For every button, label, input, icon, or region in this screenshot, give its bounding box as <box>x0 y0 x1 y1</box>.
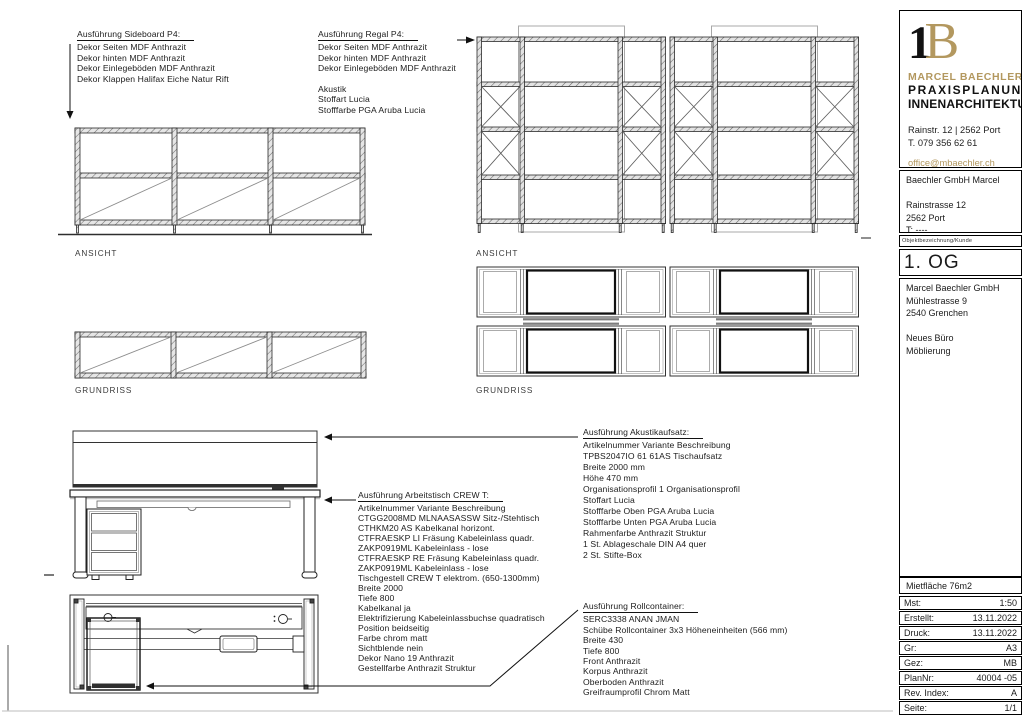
spec-line: Tiefe 800 <box>358 593 545 603</box>
meta-row: Gr: A3 <box>899 641 1022 655</box>
brand-address: Rainstr. 12 | 2562 Port T. 079 356 62 61 <box>908 124 1013 149</box>
spec-line: Farbe chrom matt <box>358 633 545 643</box>
spec-line: Breite 430 <box>583 635 787 645</box>
client-line: 2562 Port <box>906 212 1015 225</box>
spec-line: Greifraumprofil Chrom Matt <box>583 687 787 697</box>
sideboard-plan-diagonals <box>80 337 361 373</box>
spec-line: Akustik <box>318 84 456 94</box>
company-logo: 1B <box>908 18 1013 68</box>
spec-line: Stofffarbe Unten PGA Aruba Lucia <box>583 517 740 528</box>
desk-rollcontainer-front <box>87 509 141 580</box>
regal-spec-block: Ausführung Regal P4: Dekor Seiten MDF An… <box>318 29 456 115</box>
spec-line: ZAKP0919ML Kabeleinlass - lose <box>358 563 545 573</box>
rollcontainer-spec-lines: SERC3338 ANAN JMANSchübe Rollcontainer 3… <box>583 614 787 697</box>
meta-row: Seite: 1/1 <box>899 701 1022 715</box>
meta-value: 13.11.2022 <box>973 628 1017 638</box>
spec-line: Stoffart Lucia <box>583 495 740 506</box>
project-line: Mühlestrasse 9 <box>906 295 1015 308</box>
project-line: 2540 Grenchen <box>906 307 1015 320</box>
arbeitstisch-spec-lines: Artikelnummer Variante BeschreibungCTGG2… <box>358 503 545 673</box>
meta-label: Druck: <box>904 628 930 638</box>
brand-street: Rainstr. 12 | 2562 Port <box>908 124 1013 137</box>
logo-mark-b: B <box>925 13 960 70</box>
spec-line: Dekor Seiten MDF Anthrazit <box>77 42 229 52</box>
meta-value: A3 <box>1006 643 1017 653</box>
desk-plan-drawing <box>40 590 352 702</box>
meta-row: Rev. Index: A <box>899 686 1022 700</box>
spec-line: CTHKM20 AS Kabelkanal horizont. <box>358 523 545 533</box>
regal-spec-lines: Dekor Seiten MDF AnthrazitDekor hinten M… <box>318 42 456 115</box>
akustikaufsatz-spec-block: Ausführung Akustikaufsatz: Artikelnummer… <box>583 427 740 561</box>
spec-line: Dekor Seiten MDF Anthrazit <box>318 42 456 52</box>
meta-label: Gr: <box>904 643 917 653</box>
spec-line: Artikelnummer Variante Beschreibung <box>583 440 740 451</box>
logo-box: 1B MARCEL BAECHLER PRAXISPLANUNG INNENAR… <box>899 10 1022 168</box>
meta-value: 1:50 <box>999 598 1017 608</box>
spec-line: Gestellfarbe Anthrazit Struktur <box>358 663 545 673</box>
client-line: T: ---- <box>906 224 1015 233</box>
regal-plan-mid-panels <box>523 318 812 325</box>
brand-contact: office@mbaechler.ch marcelbaechler.ch <box>908 157 1013 168</box>
meta-value: 1/1 <box>1004 703 1017 713</box>
project-line: Möblierung <box>906 345 1015 358</box>
spec-line: SERC3338 ANAN JMAN <box>583 614 787 624</box>
spec-line: Breite 2000 <box>358 583 545 593</box>
spec-line: ZAKP0919ML Kabeleinlass - lose <box>358 543 545 553</box>
spec-line: Organisationsprofil 1 Organisationsprofi… <box>583 484 740 495</box>
sideboard-spec-block: Ausführung Sideboard P4: Dekor Seiten MD… <box>77 29 229 84</box>
spec-line: Dekor Einlegeböden MDF Anthrazit <box>77 63 229 73</box>
regal-plan-inner <box>480 270 857 374</box>
meta-label: Rev. Index: <box>904 688 949 698</box>
title-block: 1B MARCEL BAECHLER PRAXISPLANUNG INNENAR… <box>899 10 1022 715</box>
spec-line: Elektrifizierung Kabeleinlassbuchse quad… <box>358 613 545 623</box>
meta-label: Gez: <box>904 658 923 668</box>
regal-grundriss-label: GRUNDRISS <box>476 386 533 395</box>
sideboard-frame <box>75 128 365 233</box>
rollcontainer-spec-title: Ausführung Rollcontainer: <box>583 601 698 613</box>
spec-line: CTFRAESKP RE Fräsung Kabeleinlass quadr. <box>358 553 545 563</box>
spec-line: 2 St. Stifte-Box <box>583 550 740 561</box>
regal-plan-acoustic-boxes <box>527 271 808 373</box>
akustikaufsatz-spec-lines: Artikelnummer Variante BeschreibungTPBS2… <box>583 440 740 561</box>
sideboard-grundriss-label: GRUNDRISS <box>75 386 132 395</box>
regal-elevation-drawing <box>470 22 870 237</box>
spec-line: Tischgestell CREW T elektrom. (650-1300m… <box>358 573 545 583</box>
brand-name: MARCEL BAECHLER <box>908 71 1013 83</box>
brand-email: office@mbaechler.ch <box>908 157 1013 168</box>
sideboard-flap-diagonals <box>80 178 360 220</box>
spec-line: Schübe Rollcontainer 3x3 Höheneinheiten … <box>583 625 787 635</box>
regal-plan-drawing <box>470 258 870 383</box>
spec-line: Stofffarbe Oben PGA Aruba Lucia <box>583 506 740 517</box>
regal-spec-title: Ausführung Regal P4: <box>318 29 418 41</box>
client-lines: Baechler GmbH MarcelRainstrasse 122562 P… <box>906 174 1015 233</box>
spec-line: Korpus Anthrazit <box>583 666 787 676</box>
meta-value: 13.11.2022 <box>973 613 1017 623</box>
arbeitstisch-spec-block: Ausführung Arbeitstisch CREW T: Artikeln… <box>358 490 545 673</box>
spec-line: Rahmenfarbe Anthrazit Struktur <box>583 528 740 539</box>
meta-value: MB <box>1004 658 1018 668</box>
desk-acoustic-topper <box>73 431 317 490</box>
spec-line <box>318 74 456 84</box>
project-line: Neues Büro <box>906 332 1015 345</box>
brand-phone: T. 079 356 62 61 <box>908 137 1013 150</box>
spec-line: Dekor Klappen Halifax Eiche Natur Rift <box>77 74 229 84</box>
regal-frame <box>477 37 859 233</box>
client-line: Baechler GmbH Marcel <box>906 174 1015 187</box>
project-line <box>906 320 1015 333</box>
desk-elevation-drawing <box>40 425 352 585</box>
meta-row: Druck: 13.11.2022 <box>899 626 1022 640</box>
object-label-strip: Objektbezeichnung/Kunde <box>899 235 1022 247</box>
spec-line: Artikelnummer Variante Beschreibung <box>358 503 545 513</box>
desk-plan-top-outline <box>70 595 318 693</box>
client-line <box>906 187 1015 200</box>
spec-line: 1 St. Ablageschale DIN A4 quer <box>583 539 740 550</box>
meta-rows: Mst: 1:50 Erstellt: 13.11.2022 Druck: 13… <box>899 596 1022 715</box>
brand-line-2: INNENARCHITEKTUR <box>908 97 1013 111</box>
meta-value: A <box>1011 688 1017 698</box>
spec-line: Kabelkanal ja <box>358 603 545 613</box>
client-line: Rainstrasse 12 <box>906 199 1015 212</box>
area-box: Mietfläche 76m2 <box>899 577 1022 594</box>
sideboard-spec-title: Ausführung Sideboard P4: <box>77 29 194 41</box>
regal-plan-side-shelves <box>484 272 853 372</box>
regal-ansicht-label: ANSICHT <box>476 249 518 258</box>
spec-line: Position beidseitig <box>358 623 545 633</box>
sideboard-elevation-drawing <box>60 110 375 240</box>
client-box: Baechler GmbH MarcelRainstrasse 122562 P… <box>899 170 1022 233</box>
sideboard-ansicht-label: ANSICHT <box>75 249 117 258</box>
regal-plan-outer <box>477 267 859 376</box>
floor-title: 1. OG <box>899 249 1022 276</box>
spec-line: Dekor Einlegeböden MDF Anthrazit <box>318 63 456 73</box>
spec-line: Oberboden Anthrazit <box>583 677 787 687</box>
meta-row: Mst: 1:50 <box>899 596 1022 610</box>
meta-row: Gez: MB <box>899 656 1022 670</box>
meta-value: 40004 -05 <box>976 673 1017 683</box>
spec-line: Front Anthrazit <box>583 656 787 666</box>
spec-line: Dekor Nano 19 Anthrazit <box>358 653 545 663</box>
meta-label: Erstellt: <box>904 613 934 623</box>
project-box: Marcel Baechler GmbHMühlestrasse 92540 G… <box>899 278 1022 577</box>
meta-label: Mst: <box>904 598 921 608</box>
plan-sheet: { "colors": { "gold": "#b3985f", "line":… <box>0 0 1024 724</box>
spec-line: Dekor hinten MDF Anthrazit <box>77 53 229 63</box>
spec-line: Dekor hinten MDF Anthrazit <box>318 53 456 63</box>
brand-line-1: PRAXISPLANUNG <box>908 83 1013 97</box>
sideboard-plan-drawing <box>60 328 375 386</box>
spec-line: Stoffart Lucia <box>318 94 456 104</box>
rollcontainer-spec-block: Ausführung Rollcontainer: SERC3338 ANAN … <box>583 601 787 698</box>
sideboard-spec-lines: Dekor Seiten MDF AnthrazitDekor hinten M… <box>77 42 229 84</box>
spec-line: CTFRAESKP LI Fräsung Kabeleinlass quadr. <box>358 533 545 543</box>
meta-row: PlanNr: 40004 -05 <box>899 671 1022 685</box>
spec-line: TPBS2047IO 61 61AS Tischaufsatz <box>583 451 740 462</box>
meta-row: Erstellt: 13.11.2022 <box>899 611 1022 625</box>
spec-line: Sichtblende nein <box>358 643 545 653</box>
meta-label: PlanNr: <box>904 673 934 683</box>
spec-line: CTGG2008MD MLNAASASSW Sitz-/Stehtisch <box>358 513 545 523</box>
akustikaufsatz-spec-title: Ausführung Akustikaufsatz: <box>583 427 703 439</box>
arbeitstisch-spec-title: Ausführung Arbeitstisch CREW T: <box>358 490 503 502</box>
meta-label: Seite: <box>904 703 927 713</box>
desk-top <box>70 490 320 499</box>
project-lines: Marcel Baechler GmbHMühlestrasse 92540 G… <box>906 282 1015 357</box>
spec-line: Höhe 470 mm <box>583 473 740 484</box>
spec-line: Tiefe 800 <box>583 646 787 656</box>
regal-plan-dividers <box>521 269 815 374</box>
spec-line: Breite 2000 mm <box>583 462 740 473</box>
project-line: Marcel Baechler GmbH <box>906 282 1015 295</box>
